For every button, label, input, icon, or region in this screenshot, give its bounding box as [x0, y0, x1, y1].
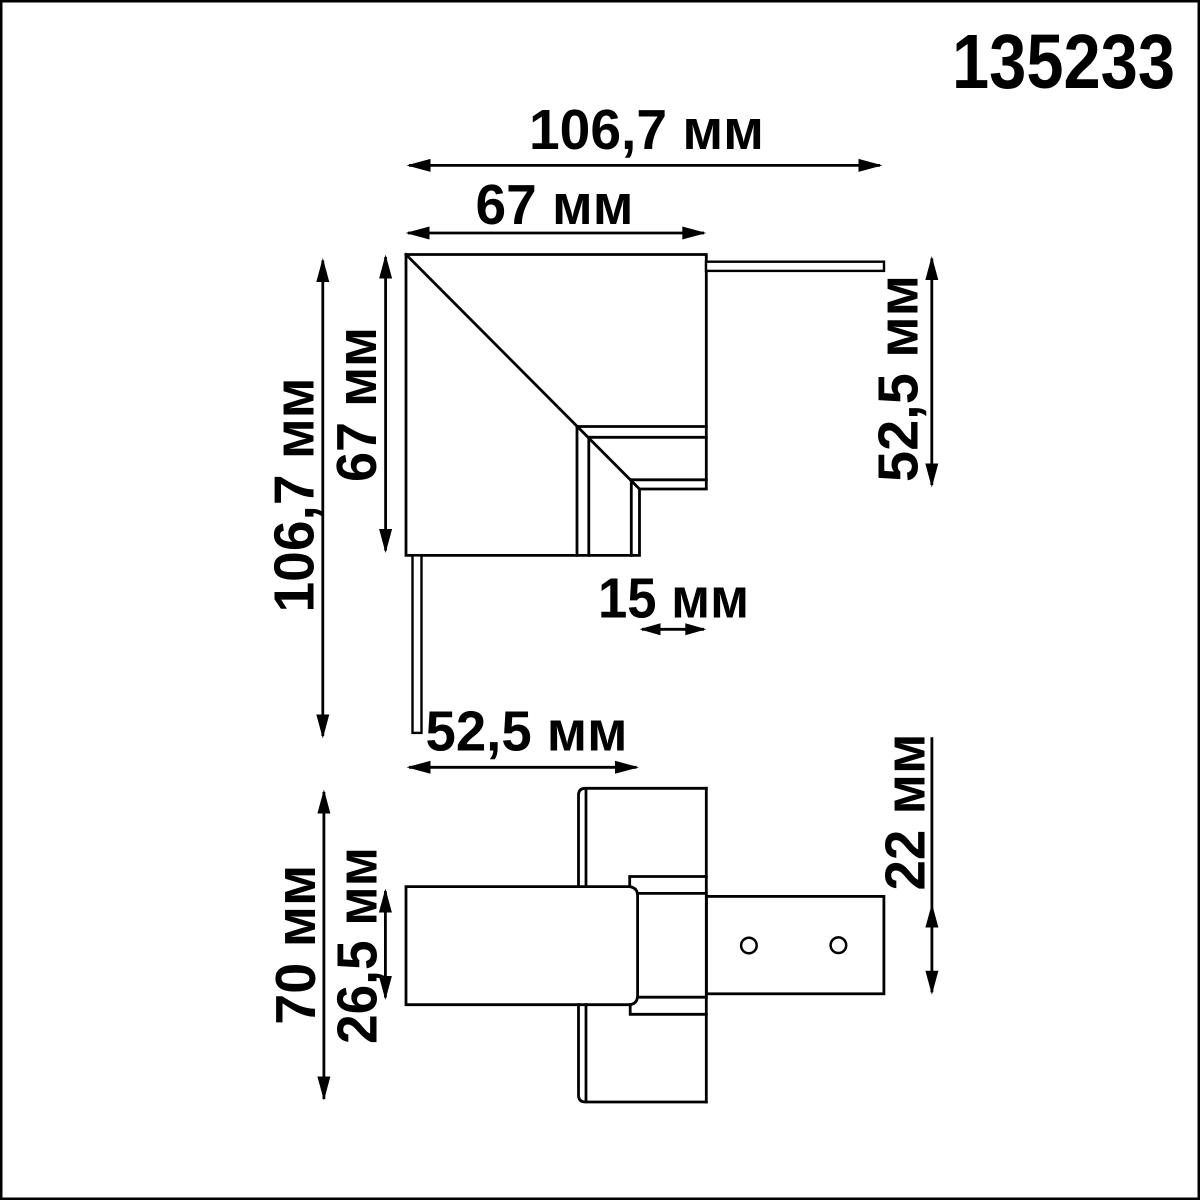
- svg-text:135233: 135233: [952, 19, 1175, 105]
- svg-text:106,7 мм: 106,7 мм: [263, 378, 327, 613]
- svg-text:106,7 мм: 106,7 мм: [529, 98, 764, 162]
- svg-text:70 мм: 70 мм: [264, 865, 328, 1025]
- svg-text:22 мм: 22 мм: [874, 734, 938, 891]
- svg-text:67 мм: 67 мм: [476, 173, 634, 237]
- svg-text:52,5 мм: 52,5 мм: [867, 275, 931, 482]
- svg-text:52,5 мм: 52,5 мм: [426, 700, 628, 764]
- svg-text:15 мм: 15 мм: [598, 567, 749, 631]
- svg-text:26,5 мм: 26,5 мм: [326, 847, 390, 1044]
- svg-text:67 мм: 67 мм: [325, 327, 389, 482]
